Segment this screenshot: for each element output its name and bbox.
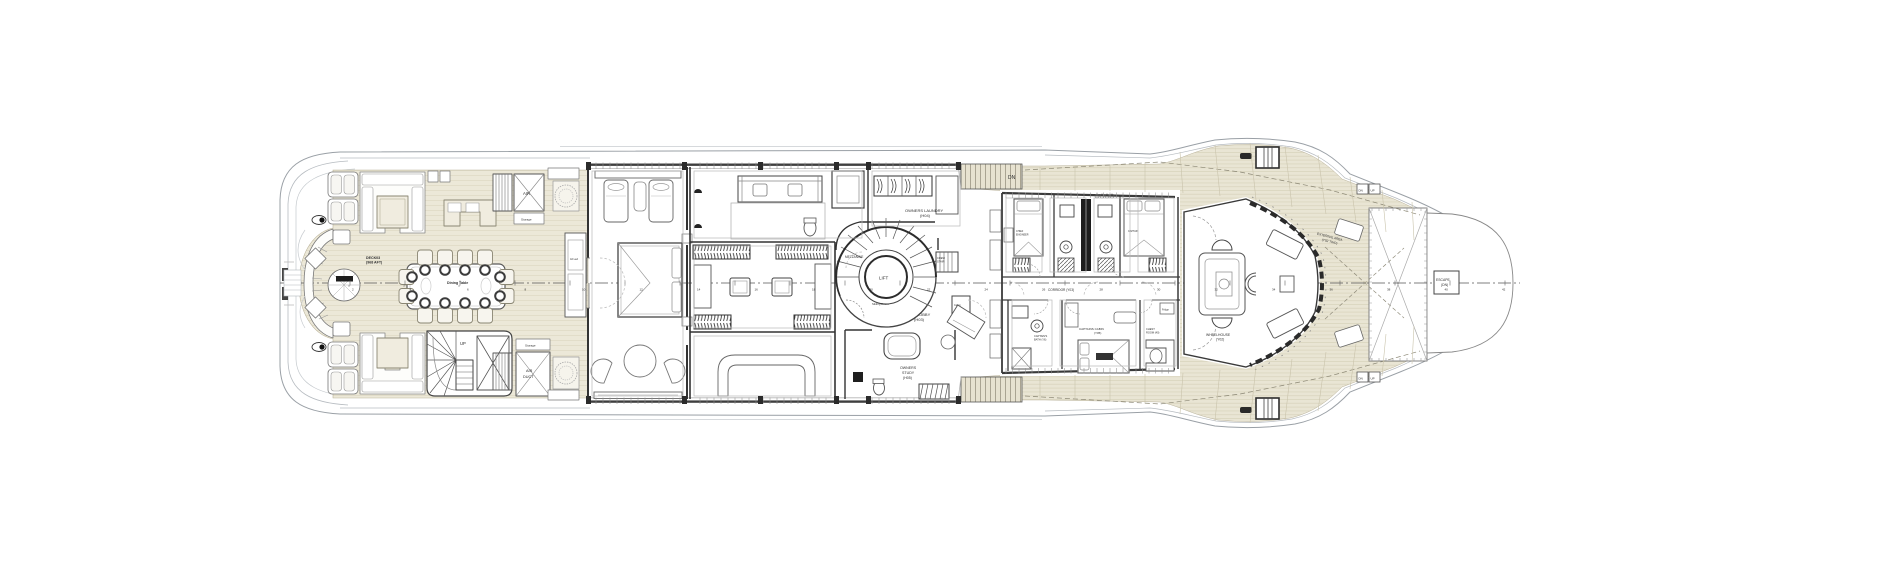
svg-text:UP: UP (460, 341, 466, 346)
svg-text:DUCT: DUCT (523, 375, 534, 379)
svg-text:CREW: CREW (937, 256, 945, 260)
svg-text:DN: DN (1359, 377, 1363, 381)
svg-text:40: 40 (1445, 288, 1449, 292)
svg-text:42 Led: 42 Led (570, 257, 578, 261)
svg-text:18: 18 (812, 288, 816, 292)
svg-text:(DN): (DN) (1441, 283, 1448, 287)
svg-text:ROOM (40): ROOM (40) (1146, 331, 1160, 335)
svg-text:DN: DN (1359, 189, 1363, 193)
svg-text:30: 30 (1157, 288, 1161, 292)
svg-text:LIFT: LIFT (879, 276, 889, 281)
svg-text:ESCAPE: ESCAPE (1436, 278, 1450, 282)
svg-text:12: 12 (640, 288, 644, 292)
svg-text:26: 26 (1042, 288, 1046, 292)
svg-text:DN: DN (1008, 175, 1016, 181)
svg-text:WHEELHOUSE: WHEELHOUSE (1206, 333, 1231, 337)
svg-text:(H05): (H05) (903, 376, 912, 380)
svg-text:UP: UP (1371, 377, 1375, 381)
svg-text:24: 24 (985, 288, 989, 292)
svg-text:36: 36 (1330, 288, 1334, 292)
svg-text:OWNERS: OWNERS (900, 366, 917, 370)
svg-text:DECK03: DECK03 (366, 256, 380, 260)
svg-text:CORRIDOR (Y03): CORRIDOR (Y03) (1048, 288, 1074, 292)
svg-text:(Y05): (Y05) (1094, 331, 1101, 335)
svg-text:AIR: AIR (523, 191, 530, 196)
svg-text:Fridge: Fridge (1162, 309, 1169, 312)
svg-text:Dining Table: Dining Table (447, 281, 468, 285)
svg-text:16: 16 (755, 288, 759, 292)
svg-text:42: 42 (1502, 288, 1506, 292)
svg-text:STUDY: STUDY (902, 371, 915, 375)
svg-text:(Y02): (Y02) (1216, 338, 1224, 342)
svg-text:MEZZANINE: MEZZANINE (845, 255, 863, 259)
svg-text:38: 38 (1387, 288, 1391, 292)
svg-text:Storage: Storage (521, 218, 532, 222)
svg-text:22: 22 (927, 288, 931, 292)
svg-text:Storage: Storage (525, 344, 536, 348)
svg-text:32: 32 (1215, 288, 1219, 292)
svg-text:34: 34 (1272, 288, 1276, 292)
svg-text:CAPTAIN: CAPTAIN (1128, 230, 1138, 233)
svg-text:10: 10 (582, 288, 586, 292)
svg-text:20: 20 (870, 288, 874, 292)
svg-text:Sliding Doors: Sliding Doors (872, 302, 889, 306)
svg-text:STAIR: STAIR (937, 260, 945, 264)
svg-text:BATH (Y6): BATH (Y6) (1034, 338, 1046, 342)
svg-text:UP: UP (1371, 189, 1375, 193)
svg-text:ENGINEER: ENGINEER (1016, 233, 1029, 236)
svg-text:CAPTAIN'S: CAPTAIN'S (1034, 334, 1048, 338)
svg-text:28: 28 (1100, 288, 1104, 292)
svg-text:(H04): (H04) (920, 213, 931, 218)
svg-text:(968 AFT): (968 AFT) (366, 261, 383, 265)
svg-text:CHEST: CHEST (1146, 327, 1155, 331)
svg-text:14: 14 (697, 288, 701, 292)
svg-text:AIR: AIR (526, 369, 533, 373)
